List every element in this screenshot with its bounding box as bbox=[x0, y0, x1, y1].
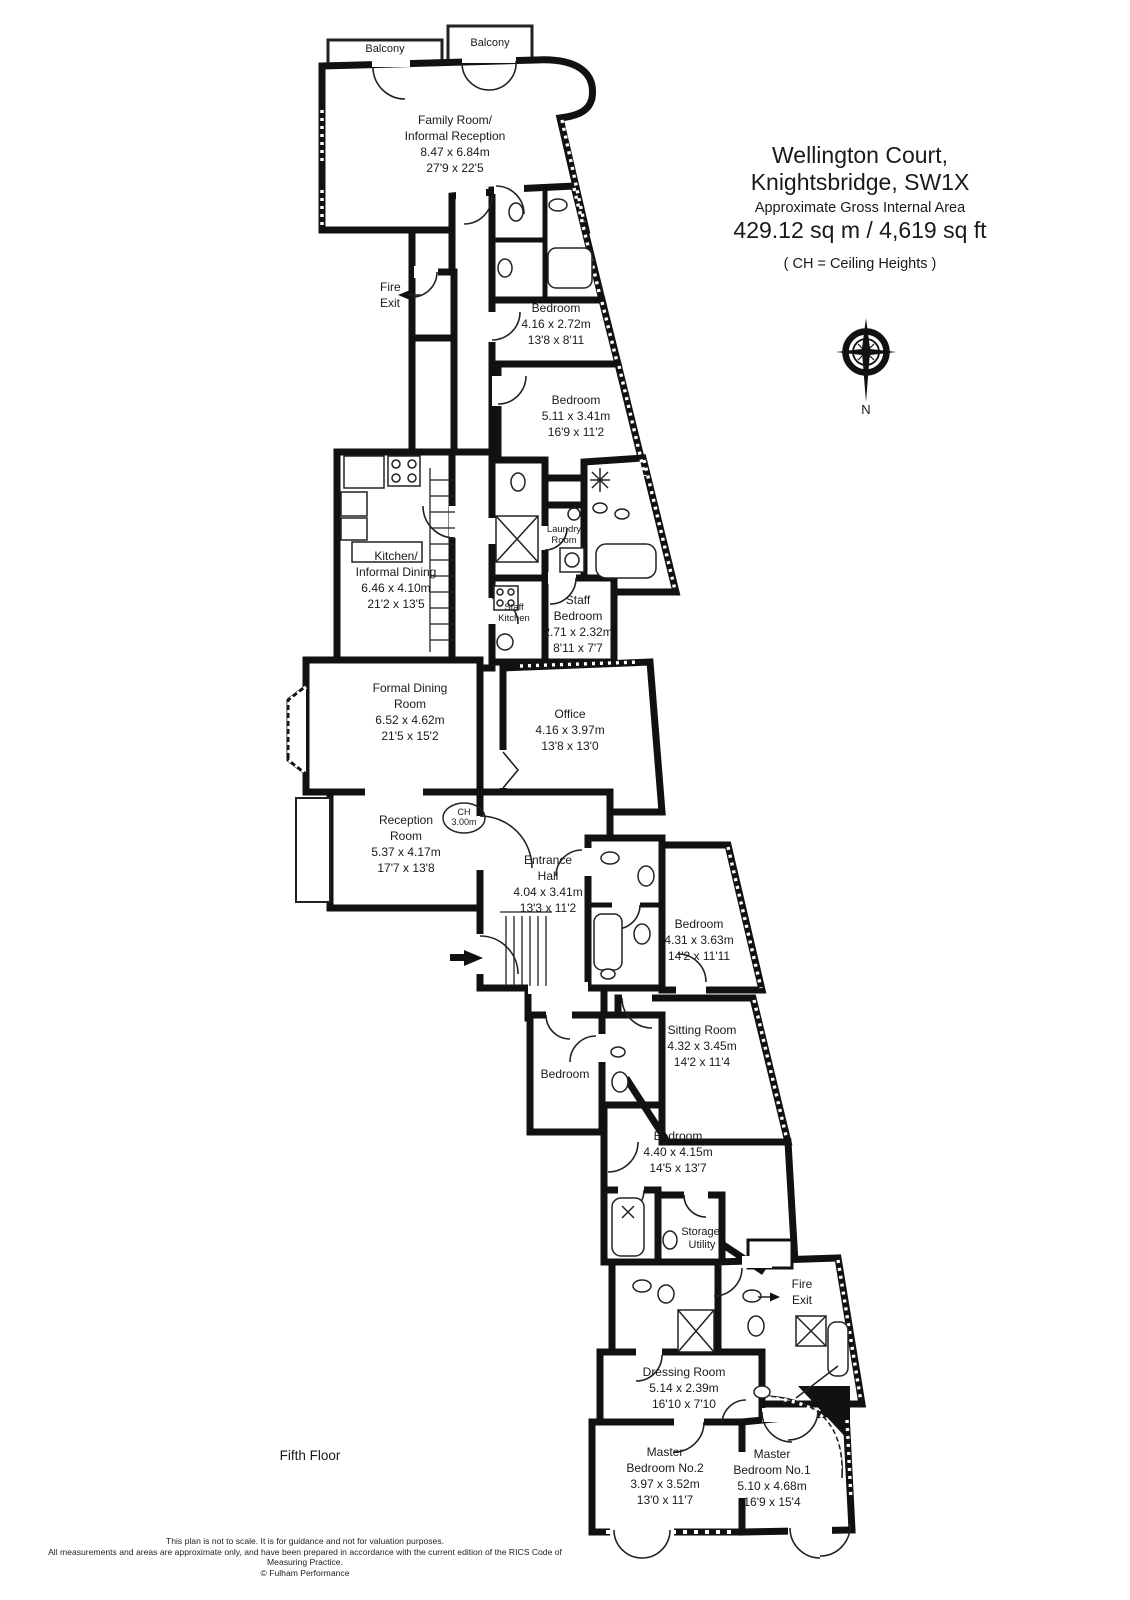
fire-exit-top-label: Fire Exit bbox=[391, 279, 401, 311]
room-label-office: Office4.16 x 3.97m13'8 x 13'0 bbox=[535, 706, 604, 754]
toilet-icon bbox=[638, 866, 654, 886]
room-label-bedroom-2: Bedroom5.11 x 3.41m16'9 x 11'2 bbox=[542, 392, 610, 440]
fire-exit-bottom-label: FireExit bbox=[792, 1276, 813, 1308]
ceiling-height-note: ( CH = Ceiling Heights ) bbox=[645, 255, 1075, 273]
room-label-entrance-hall: EntranceHall 4.04 x 3.41m13'3 x 11'2 bbox=[513, 852, 582, 916]
area-label: Approximate Gross Internal Area bbox=[645, 199, 1075, 217]
sink-icon bbox=[743, 1290, 761, 1302]
balcony-b-label: Balcony bbox=[470, 37, 509, 50]
toilet-icon bbox=[509, 203, 523, 221]
bathtub-icon bbox=[548, 248, 592, 288]
room-label-staff-kitchen: StaffKitchen bbox=[498, 602, 530, 624]
sink-icon bbox=[601, 852, 619, 864]
balcony-a-label: Balcony bbox=[365, 43, 404, 56]
room-label-bedroom-1: Bedroom4.16 x 2.72m13'8 x 8'11 bbox=[521, 300, 590, 348]
toilet-icon bbox=[511, 473, 525, 491]
sink-icon bbox=[549, 199, 567, 211]
room-label-bedroom-3: Bedroom4.31 x 3.63m14'2 x 11'11 bbox=[664, 916, 733, 964]
room-label-bedroom-5: Bedroom4.40 x 4.15m14'5 x 13'7 bbox=[643, 1128, 712, 1176]
toilet-icon bbox=[498, 259, 512, 277]
room-label-formal-dining: Formal DiningRoom 6.52 x 4.62m21'5 x 15'… bbox=[373, 680, 448, 744]
page-title-address1: Wellington Court, bbox=[645, 142, 1075, 169]
toilet-icon bbox=[748, 1316, 764, 1336]
footer-disclaimer: This plan is not to scale. It is for gui… bbox=[30, 1536, 580, 1578]
area-value: 429.12 sq m / 4,619 sq ft bbox=[645, 217, 1075, 243]
room-label-kitchen: Kitchen/Informal Dining 6.46 x 4.10m21'2… bbox=[356, 548, 437, 612]
washer-icon bbox=[560, 548, 584, 572]
title-block: Wellington Court, Knightsbridge, SW1X Ap… bbox=[645, 142, 1075, 273]
room-label-storage-utility: Storage/Utility bbox=[681, 1226, 723, 1252]
toilet-icon bbox=[663, 1231, 677, 1249]
room-label-master-bedroom-2: MasterBedroom No.2 3.97 x 3.52m13'0 x 11… bbox=[626, 1444, 703, 1508]
room-label-sitting-room: Sitting Room4.32 x 3.45m14'2 x 11'4 bbox=[667, 1022, 736, 1070]
compass-north-label: N bbox=[861, 402, 870, 417]
room-label-reception: ReceptionRoom 5.37 x 4.17m17'7 x 13'8 bbox=[371, 812, 440, 876]
sink-icon bbox=[754, 1386, 770, 1398]
toilet-icon bbox=[612, 1072, 628, 1092]
sink-icon bbox=[611, 1047, 625, 1057]
ceiling-height-badge: CH3.00m bbox=[451, 807, 476, 827]
room-label-dressing-room: Dressing Room5.14 x 2.39m16'10 x 7'10 bbox=[643, 1364, 726, 1412]
toilet-icon bbox=[658, 1285, 674, 1303]
disclaimer-line-1: This plan is not to scale. It is for gui… bbox=[30, 1536, 580, 1547]
room-label-bedroom-4: Bedroom bbox=[541, 1066, 590, 1082]
room-label-family-room: Family Room/Informal Reception 8.47 x 6.… bbox=[405, 112, 506, 176]
bathtub-icon bbox=[594, 914, 622, 970]
bathtub-icon bbox=[828, 1322, 848, 1376]
room-label-staff-bedroom: StaffBedroom 2.71 x 2.32m8'11 x 7'7 bbox=[543, 592, 612, 656]
room-label-master-bedroom-1: MasterBedroom No.1 5.10 x 4.68m16'9 x 15… bbox=[733, 1446, 810, 1510]
page-title-address2: Knightsbridge, SW1X bbox=[645, 169, 1075, 196]
compass-icon bbox=[836, 318, 896, 402]
disclaimer-line-2: All measurements and areas are approxima… bbox=[30, 1547, 580, 1568]
floorplan-page: Wellington Court, Knightsbridge, SW1X Ap… bbox=[0, 0, 1130, 1600]
bathtub-icon bbox=[596, 544, 656, 578]
toilet-icon bbox=[634, 924, 650, 944]
sink-icon bbox=[633, 1280, 651, 1292]
copyright-line: © Fulham Performance bbox=[30, 1568, 580, 1579]
floor-label: Fifth Floor bbox=[280, 1448, 341, 1463]
bathtub-icon bbox=[612, 1198, 644, 1256]
room-label-laundry: LaundryRoom bbox=[547, 524, 581, 546]
